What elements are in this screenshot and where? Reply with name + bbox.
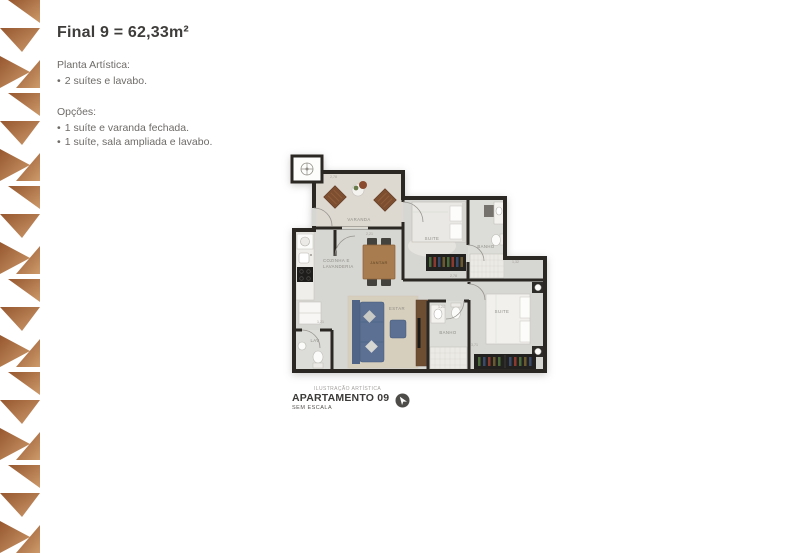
dim-cozinha: 1,21 — [317, 320, 324, 324]
utility-box — [292, 156, 322, 182]
plan-caption: ILUSTRAÇÃO ARTÍSTICA APARTAMENTO 09 SEM … — [292, 386, 410, 413]
list-item: •2 suítes e lavabo. — [57, 74, 147, 88]
caption-text-block: APARTAMENTO 09 SEM ESCALA — [292, 392, 389, 411]
estar-tv-rack — [416, 300, 428, 366]
room-label-jantar: JANTAR — [370, 260, 388, 265]
floorplan-svg: VARANDA SUITE BANHO JANTAR COZINHA E LAV… — [290, 150, 556, 382]
list-item-text: 1 suíte e varanda fechada. — [65, 122, 189, 134]
planta-artistica-list: •2 suítes e lavabo. — [57, 74, 147, 88]
bullet: • — [57, 75, 61, 87]
room-label-suite2: SUITE — [495, 309, 510, 314]
dim-suite2: 3,71 — [471, 343, 478, 347]
bullet: • — [57, 136, 61, 148]
caption-title: APARTAMENTO 09 — [292, 392, 389, 404]
room-label-banho1: BANHO — [477, 244, 495, 249]
suite2-wardrobe — [474, 354, 536, 369]
triangle-pattern-strip — [0, 0, 40, 558]
opcoes-title: Opções: — [57, 106, 96, 118]
bullet: • — [57, 122, 61, 134]
page-title: Final 9 = 62,33m² — [57, 24, 189, 42]
room-label-varanda: VARANDA — [347, 217, 370, 222]
planta-artistica-title: Planta Artística: — [57, 59, 130, 71]
suite2-bed — [486, 294, 530, 344]
dim-hall: 1,20 — [438, 305, 445, 309]
opcoes-list: •1 suíte e varanda fechada. •1 suíte, sa… — [57, 121, 212, 149]
list-item-text: 2 suítes e lavabo. — [65, 75, 147, 87]
list-item-text: 1 suíte, sala ampliada e lavabo. — [65, 136, 213, 148]
triangle-pattern-svg — [0, 0, 40, 558]
dim-varanda: 2,78 — [330, 175, 337, 179]
floorplan: VARANDA SUITE BANHO JANTAR COZINHA E LAV… — [290, 150, 556, 382]
dim-jantar: 2,21 — [366, 232, 373, 236]
room-label-estar: ESTAR — [389, 306, 405, 311]
caption-subtitle: SEM ESCALA — [292, 405, 389, 411]
room-label-suite1: SUITE — [425, 236, 440, 241]
dim-setback: 1,32 — [512, 260, 519, 264]
brochure-page: Final 9 = 62,33m² Planta Artística: •2 s… — [0, 0, 800, 558]
room-label-lav: LAV — [310, 338, 319, 343]
room-label-cozinha-line1: COZINHA E — [323, 258, 350, 263]
room-label-cozinha-line2: LAVANDERIA — [323, 264, 354, 269]
entry-opening — [312, 208, 317, 226]
room-label-banho2: BANHO — [439, 330, 457, 335]
dim-suite1: 2,78 — [450, 274, 457, 278]
north-arrow-icon — [395, 393, 410, 413]
suite1-wardrobe — [426, 254, 466, 271]
list-item: •1 suíte, sala ampliada e lavabo. — [57, 135, 212, 149]
list-item: •1 suíte e varanda fechada. — [57, 121, 212, 135]
